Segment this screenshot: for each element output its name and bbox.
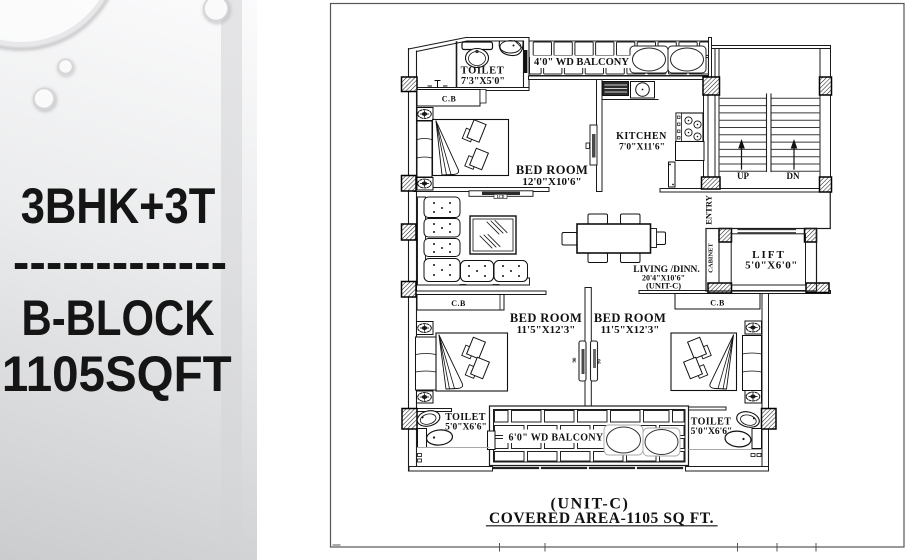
svg-text:C.B: C.B [451,299,466,308]
svg-text:90: 90 [573,357,578,363]
svg-text:LCD: LCD [497,195,505,199]
svg-text:C.B: C.B [710,299,725,308]
svg-text:6'0" WD BALCONY: 6'0" WD BALCONY [509,433,604,444]
svg-text:12'0"X10'6": 12'0"X10'6" [522,176,581,188]
svg-text:BED ROOM: BED ROOM [510,311,582,325]
svg-text:(UNIT-C): (UNIT-C) [646,281,681,291]
svg-text:11'5"X12'3": 11'5"X12'3" [517,324,576,336]
svg-text:KITCHEN: KITCHEN [616,131,667,142]
svg-text:11'5"X12'3": 11'5"X12'3" [601,324,660,336]
svg-text:DN: DN [787,171,800,181]
svg-text:90: 90 [598,359,603,365]
svg-text:7'0"X11'6": 7'0"X11'6" [619,143,665,153]
svg-text:5'0"X6'0": 5'0"X6'0" [745,260,798,272]
svg-text:C.B: C.B [442,95,457,104]
svg-text:BED ROOM: BED ROOM [516,163,588,177]
svg-text:TOILET: TOILET [461,66,505,77]
svg-text:4'0" WD BALCONY: 4'0" WD BALCONY [534,57,629,68]
svg-text:UP: UP [737,171,749,181]
svg-text:CABINET: CABINET [708,243,715,273]
svg-text:TOILET: TOILET [691,417,732,428]
svg-text:5'0"X6'6": 5'0"X6'6" [445,423,487,433]
svg-text:BED ROOM: BED ROOM [594,311,666,325]
svg-text:ENTRY: ENTRY [704,195,714,224]
svg-text:COVERED AREA-1105 SQ FT.: COVERED AREA-1105 SQ FT. [489,510,714,527]
svg-text:7'3"X5'0": 7'3"X5'0" [461,76,505,87]
svg-text:TOILET: TOILET [445,412,486,423]
